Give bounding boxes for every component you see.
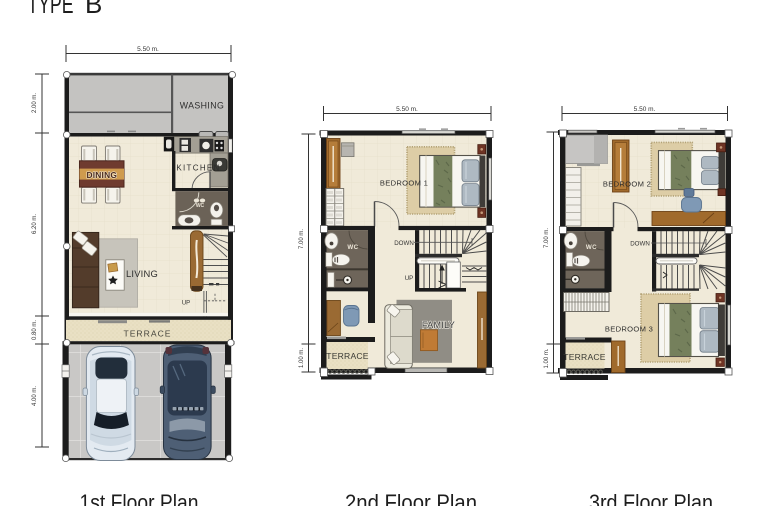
svg-text:5.50 m.: 5.50 m. xyxy=(137,46,159,53)
svg-text:BEDROOM 1: BEDROOM 1 xyxy=(380,179,428,188)
svg-text:WC: WC xyxy=(586,244,597,251)
svg-text:DOWN: DOWN xyxy=(394,240,414,247)
svg-text:1.00 m.: 1.00 m. xyxy=(544,348,550,368)
svg-text:BEDROOM 2: BEDROOM 2 xyxy=(603,180,651,189)
svg-text:1.00 m.: 1.00 m. xyxy=(299,348,305,368)
svg-text:BEDROOM 3: BEDROOM 3 xyxy=(605,325,653,334)
svg-text:WC: WC xyxy=(196,203,205,209)
svg-text:2nd Floor Plan: 2nd Floor Plan xyxy=(345,490,477,506)
svg-text:3rd Floor Plan: 3rd Floor Plan xyxy=(589,490,713,506)
svg-text:WASHING: WASHING xyxy=(180,101,225,111)
svg-text:TYPE: TYPE xyxy=(28,0,74,19)
svg-text:TERRACE: TERRACE xyxy=(123,329,171,339)
svg-text:TERRACE: TERRACE xyxy=(326,351,369,361)
svg-text:LIVING: LIVING xyxy=(126,268,158,279)
svg-text:5.50 m.: 5.50 m. xyxy=(634,106,656,113)
svg-text:KITCHEN: KITCHEN xyxy=(176,164,220,173)
svg-text:7.00 m.: 7.00 m. xyxy=(299,229,305,249)
svg-text:DOWN: DOWN xyxy=(630,241,650,248)
svg-text:UP: UP xyxy=(182,301,190,307)
svg-text:WC: WC xyxy=(347,244,358,251)
svg-text:UP: UP xyxy=(405,275,414,282)
svg-text:FAMILY: FAMILY xyxy=(422,320,455,330)
svg-text:7.00 m.: 7.00 m. xyxy=(544,228,550,248)
svg-text:2.00 m.: 2.00 m. xyxy=(32,93,38,113)
svg-text:4.00 m.: 4.00 m. xyxy=(32,386,38,406)
svg-text:DINING: DINING xyxy=(87,170,118,180)
svg-text:5.50 m.: 5.50 m. xyxy=(396,106,418,113)
svg-text:1st Floor Plan: 1st Floor Plan xyxy=(80,490,199,506)
svg-text:TERRACE: TERRACE xyxy=(563,352,606,362)
svg-text:B: B xyxy=(85,0,102,19)
svg-text:6.20 m.: 6.20 m. xyxy=(32,214,38,234)
svg-text:0.80 m.: 0.80 m. xyxy=(32,320,38,340)
